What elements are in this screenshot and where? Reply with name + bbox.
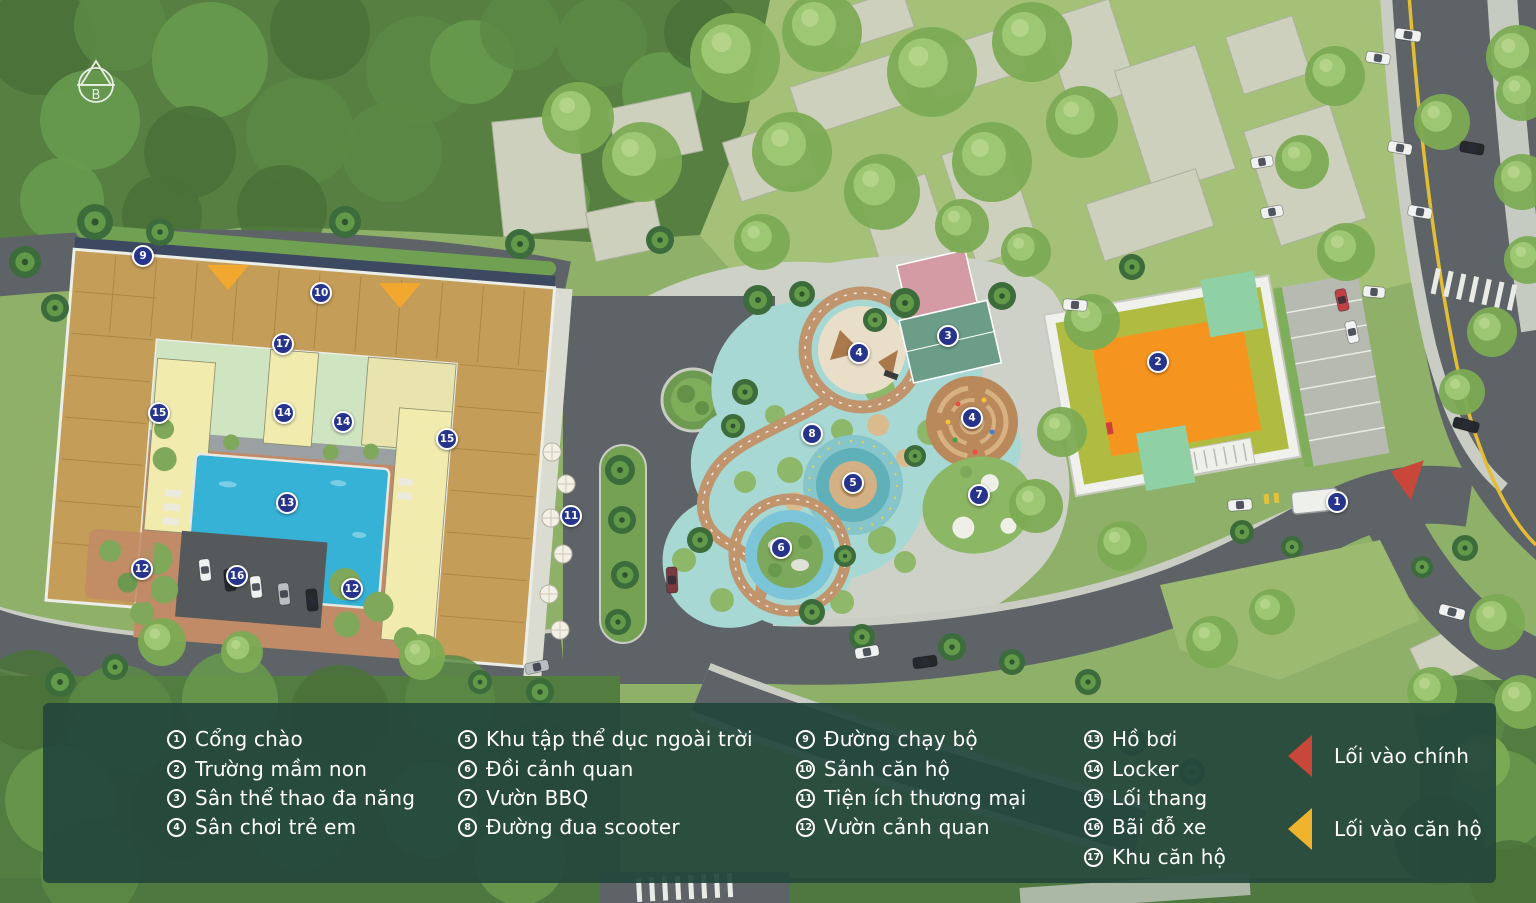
legend-item-number: 11	[796, 789, 815, 808]
legend-item-label: Khu căn hộ	[1112, 845, 1226, 869]
legend-item-11: 11Tiện ích thương mại	[796, 783, 1026, 813]
car	[305, 588, 318, 611]
legend-item-label: Sân chơi trẻ em	[195, 815, 356, 839]
tree	[542, 82, 614, 154]
palm-tree	[505, 229, 535, 259]
legend-item-7: 7Vườn BBQ	[458, 783, 588, 813]
legend-entrance-label: Lối vào chính	[1334, 744, 1469, 768]
palm-tree	[938, 633, 966, 661]
legend-item-label: Bãi đỗ xe	[1112, 815, 1207, 839]
palm-tree	[743, 285, 773, 315]
legend-item-label: Khu tập thể dục ngoài trời	[486, 727, 753, 751]
tree	[690, 13, 780, 103]
tree	[1046, 86, 1118, 158]
palm-tree	[1452, 535, 1478, 561]
tree	[1317, 223, 1375, 281]
legend-panel: 1Cổng chào2Trường mầm non3Sân thể thao đ…	[43, 703, 1496, 883]
tree	[887, 27, 977, 117]
car	[1063, 299, 1088, 312]
legend-item-label: Lối thang	[1112, 786, 1207, 810]
palm-tree	[41, 294, 69, 322]
tree	[992, 2, 1072, 82]
legend-item-label: Hồ bơi	[1112, 727, 1177, 751]
legend-main-entrance: Lối vào chính	[1288, 734, 1469, 778]
tree	[1275, 135, 1329, 189]
apartment-entrance-arrow-icon	[1288, 808, 1312, 850]
compass-north-label: B	[92, 88, 101, 103]
legend-item-6: 6Đồi cảnh quan	[458, 754, 634, 784]
car	[249, 575, 262, 598]
legend-item-number: 6	[458, 760, 477, 779]
palm-tree	[1281, 536, 1303, 558]
palm-tree	[904, 445, 926, 467]
palm-tree	[721, 414, 745, 438]
legend-item-label: Đường đua scooter	[486, 815, 680, 839]
palm-tree	[1119, 254, 1145, 280]
legend-item-9: 9Đường chạy bộ	[796, 724, 978, 754]
legend-item-number: 1	[167, 730, 186, 749]
palm-tree	[999, 649, 1025, 675]
legend-item-number: 13	[1084, 730, 1103, 749]
legend-item-number: 4	[167, 818, 186, 837]
palm-tree	[1230, 520, 1254, 544]
legend-item-2: 2Trường mầm non	[167, 754, 367, 784]
legend-item-number: 9	[796, 730, 815, 749]
palm-tree	[799, 599, 825, 625]
legend-item-number: 10	[796, 760, 815, 779]
legend-item-number: 8	[458, 818, 477, 837]
legend-item-label: Trường mầm non	[195, 757, 367, 781]
palm-tree	[611, 561, 639, 589]
car	[277, 582, 290, 605]
tree	[844, 154, 920, 230]
legend-item-17: 17Khu căn hộ	[1084, 842, 1226, 872]
tree	[221, 631, 263, 673]
tree	[602, 122, 682, 202]
legend-item-5: 5Khu tập thể dục ngoài trời	[458, 724, 753, 754]
tree	[1097, 521, 1147, 571]
car	[223, 568, 236, 591]
legend-item-label: Tiện ích thương mại	[824, 786, 1026, 810]
legend-item-number: 16	[1084, 818, 1103, 837]
tree	[1439, 369, 1485, 415]
legend-item-1: 1Cổng chào	[167, 724, 303, 754]
tree	[752, 112, 832, 192]
palm-tree	[605, 455, 635, 485]
tree	[1186, 616, 1238, 668]
legend-item-number: 5	[458, 730, 477, 749]
tree	[1249, 589, 1295, 635]
legend-item-number: 12	[796, 818, 815, 837]
palm-tree	[1075, 669, 1101, 695]
palm-tree	[1411, 556, 1433, 578]
palm-tree	[834, 545, 856, 567]
palm-tree	[605, 609, 631, 635]
legend-item-13: 13Hồ bơi	[1084, 724, 1177, 754]
legend-item-number: 14	[1084, 760, 1103, 779]
umbrella	[554, 545, 572, 563]
legend-item-3: 3Sân thể thao đa năng	[167, 783, 415, 813]
umbrella	[542, 509, 560, 527]
tree	[1469, 594, 1525, 650]
umbrella	[551, 621, 569, 639]
legend-item-4: 4Sân chơi trẻ em	[167, 812, 356, 842]
landscape-hill	[734, 499, 846, 611]
site-plan: B 12344567891011121213141415151617 1Cổng…	[0, 0, 1536, 903]
legend-item-number: 7	[458, 789, 477, 808]
tree	[399, 634, 445, 680]
palm-tree	[608, 506, 636, 534]
legend-item-15: 15Lối thang	[1084, 783, 1207, 813]
legend-item-number: 3	[167, 789, 186, 808]
tree	[935, 199, 989, 253]
legend-item-number: 17	[1084, 848, 1103, 867]
legend-item-label: Vườn cảnh quan	[824, 815, 990, 839]
palm-tree	[687, 527, 713, 553]
legend-item-label: Locker	[1112, 757, 1179, 781]
playground-2	[926, 376, 1018, 468]
tree	[1009, 479, 1063, 533]
main-entrance-arrow-icon	[1288, 735, 1312, 777]
car	[666, 567, 678, 593]
tree	[1001, 227, 1051, 277]
palm-tree	[146, 218, 174, 246]
umbrella	[543, 443, 561, 461]
palm-tree	[45, 667, 75, 697]
compass: B	[66, 48, 126, 118]
umbrella	[557, 475, 575, 493]
legend-item-label: Đường chạy bộ	[824, 727, 978, 751]
palm-tree	[77, 204, 113, 240]
legend-item-14: 14Locker	[1084, 754, 1179, 784]
legend-item-10: 10Sảnh căn hộ	[796, 754, 950, 784]
palm-tree	[329, 206, 361, 238]
palm-tree	[890, 288, 920, 318]
palm-tree	[863, 308, 887, 332]
palm-tree	[732, 379, 758, 405]
palm-tree	[789, 281, 815, 307]
tree	[734, 214, 790, 270]
palm-tree	[468, 670, 492, 694]
legend-item-label: Sảnh căn hộ	[824, 757, 950, 781]
palm-tree	[988, 282, 1016, 310]
tree	[1467, 307, 1517, 357]
legend-item-label: Đồi cảnh quan	[486, 757, 634, 781]
palm-tree	[646, 226, 674, 254]
legend-item-label: Vườn BBQ	[486, 786, 588, 810]
tree	[138, 618, 186, 666]
tree	[1305, 46, 1365, 106]
legend-item-label: Sân thể thao đa năng	[195, 786, 415, 810]
car	[1363, 286, 1386, 299]
legend-item-12: 12Vườn cảnh quan	[796, 812, 990, 842]
car	[1228, 499, 1253, 512]
legend-item-8: 8Đường đua scooter	[458, 812, 680, 842]
legend-item-label: Cổng chào	[195, 727, 303, 751]
legend-entrance-label: Lối vào căn hộ	[1334, 817, 1482, 841]
legend-apartment-entrance: Lối vào căn hộ	[1288, 807, 1482, 851]
palm-tree	[526, 678, 554, 706]
tree	[1037, 407, 1087, 457]
car	[198, 558, 211, 581]
legend-item-number: 2	[167, 760, 186, 779]
legend-item-16: 16Bãi đỗ xe	[1084, 812, 1207, 842]
legend-item-number: 15	[1084, 789, 1103, 808]
umbrella	[540, 585, 558, 603]
palm-tree	[102, 654, 128, 680]
palm-tree	[9, 246, 41, 278]
tree	[952, 122, 1032, 202]
